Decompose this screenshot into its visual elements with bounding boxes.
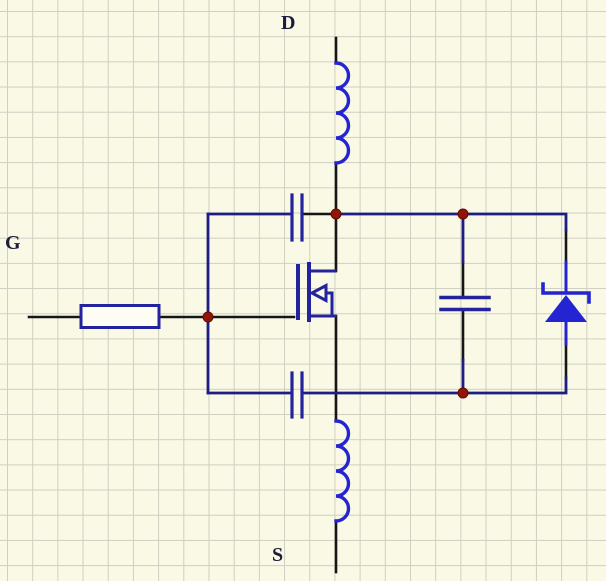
wire-drain-node-top-rail[interactable] <box>336 214 566 230</box>
drain-inductor[interactable] <box>336 63 349 163</box>
source-inductor-coil[interactable] <box>336 421 349 521</box>
junction-top-rail-cds <box>458 209 468 219</box>
mosfet-body-arrow-icon <box>312 286 326 301</box>
wires-navy <box>208 214 566 393</box>
zener-anode-triangle[interactable] <box>545 295 587 322</box>
schematic-canvas <box>0 0 606 581</box>
wire-source-node-bottom-rail[interactable] <box>303 378 566 393</box>
power-mosfet[interactable] <box>298 264 335 320</box>
protection-zener-diode[interactable] <box>543 262 589 344</box>
junction-bottom-rail-cds <box>458 388 468 398</box>
junction-gate-node <box>203 312 213 322</box>
drain-source-capacitor[interactable] <box>441 298 489 310</box>
gate-resistor-body[interactable] <box>81 306 159 328</box>
drain-inductor-coil[interactable] <box>336 63 349 163</box>
gate-source-capacitor[interactable] <box>292 373 302 417</box>
schematic-sheet: D G S <box>0 0 606 581</box>
junction-drain-node <box>331 209 341 219</box>
gate-drain-capacitor[interactable] <box>292 195 302 240</box>
source-inductor[interactable] <box>336 421 349 521</box>
gate-resistor[interactable] <box>81 306 159 328</box>
